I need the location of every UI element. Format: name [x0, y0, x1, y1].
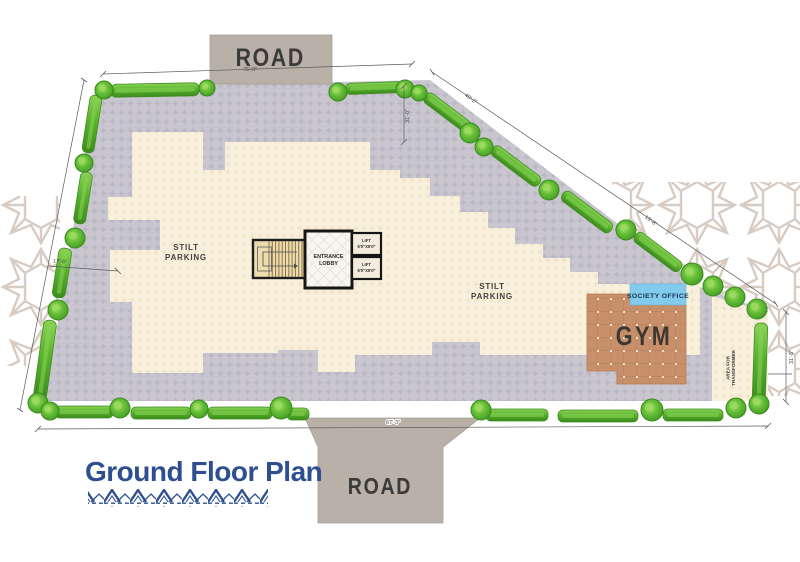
gym-label: GYM: [616, 322, 672, 352]
svg-text:PARKING: PARKING: [471, 292, 513, 301]
title-ornament: [88, 489, 268, 507]
dim-right: 31'-5": [789, 350, 795, 364]
tree: [95, 81, 113, 99]
tree: [471, 400, 491, 420]
tree: [747, 299, 767, 319]
svg-text:5'0"X5'0": 5'0"X5'0": [357, 268, 375, 273]
tree: [460, 123, 480, 143]
tree: [539, 180, 559, 200]
tree: [411, 85, 427, 101]
tree: [199, 80, 215, 96]
dim-inner-top: 31'-0": [405, 109, 411, 123]
society-office-label: SOCIETY OFFICE: [627, 293, 689, 300]
tree: [475, 138, 493, 156]
dim-left-short: 17'-6": [53, 259, 67, 266]
tree: [48, 300, 68, 320]
page-title: Ground Floor Plan: [85, 456, 322, 487]
hedge: [111, 83, 199, 98]
dim-bottom: 67'-3": [386, 420, 400, 426]
svg-text:AREA FOR: AREA FOR: [726, 355, 731, 380]
hedge: [663, 409, 723, 421]
tree: [725, 287, 745, 307]
dim-diagonal-1: 40'-2": [463, 93, 478, 106]
tree: [75, 154, 93, 172]
tree: [641, 399, 663, 421]
svg-text:TRANSFORMER: TRANSFORMER: [731, 349, 736, 385]
tree: [329, 83, 347, 101]
staircase: [253, 240, 305, 278]
tree: [681, 263, 703, 285]
svg-text:STILT: STILT: [479, 282, 505, 291]
tree: [726, 398, 746, 418]
hedge: [752, 323, 768, 401]
svg-text:LIFT: LIFT: [362, 238, 371, 243]
hedge: [55, 406, 113, 418]
road-bottom-label: ROAD: [348, 474, 412, 500]
hedge: [346, 82, 402, 95]
svg-text:STILT: STILT: [173, 243, 199, 252]
tree: [65, 228, 85, 248]
tree: [190, 400, 208, 418]
hedge: [558, 410, 638, 422]
tree: [270, 397, 292, 419]
hedge: [131, 407, 191, 419]
tree: [616, 220, 636, 240]
road-bottom: [305, 418, 480, 523]
svg-text:LIFT: LIFT: [362, 262, 371, 267]
road-top-label: ROAD: [236, 43, 305, 71]
svg-text:ENTRANCE: ENTRANCE: [314, 254, 344, 260]
hedge: [486, 409, 548, 421]
ground-floor-plan-svg: 75'-0" 67'-3" 17'-6" 40'-2" 19'-8" 31'-5…: [0, 0, 800, 562]
svg-text:PARKING: PARKING: [165, 253, 207, 262]
tree: [703, 276, 723, 296]
tree: [41, 402, 59, 420]
tree: [110, 398, 130, 418]
ground-floor-plan-page: 75'-0" 67'-3" 17'-6" 40'-2" 19'-8" 31'-5…: [0, 0, 800, 562]
tree: [749, 394, 769, 414]
hedge: [208, 407, 272, 419]
svg-text:LOBBY: LOBBY: [319, 261, 338, 267]
svg-text:5'0"X5'0": 5'0"X5'0": [357, 244, 375, 249]
